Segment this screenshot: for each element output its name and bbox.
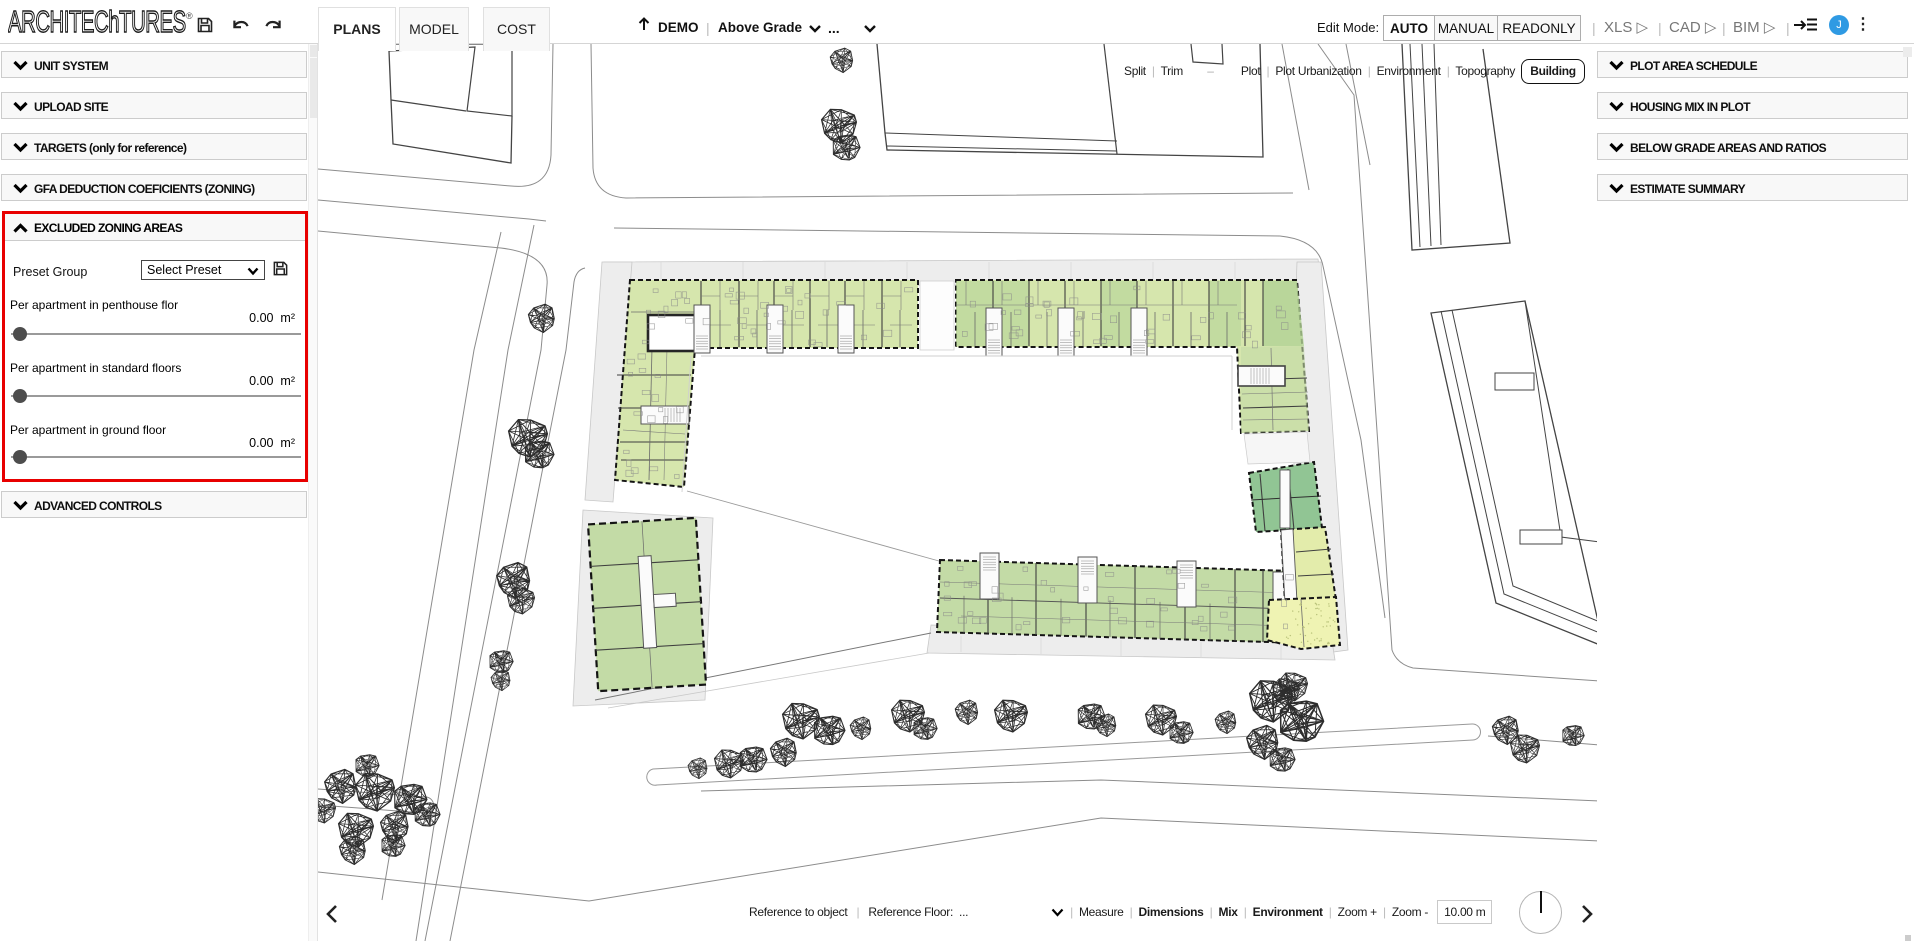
svg-text:ARCHITEChTURES: ARCHITEChTURES [8, 7, 186, 39]
